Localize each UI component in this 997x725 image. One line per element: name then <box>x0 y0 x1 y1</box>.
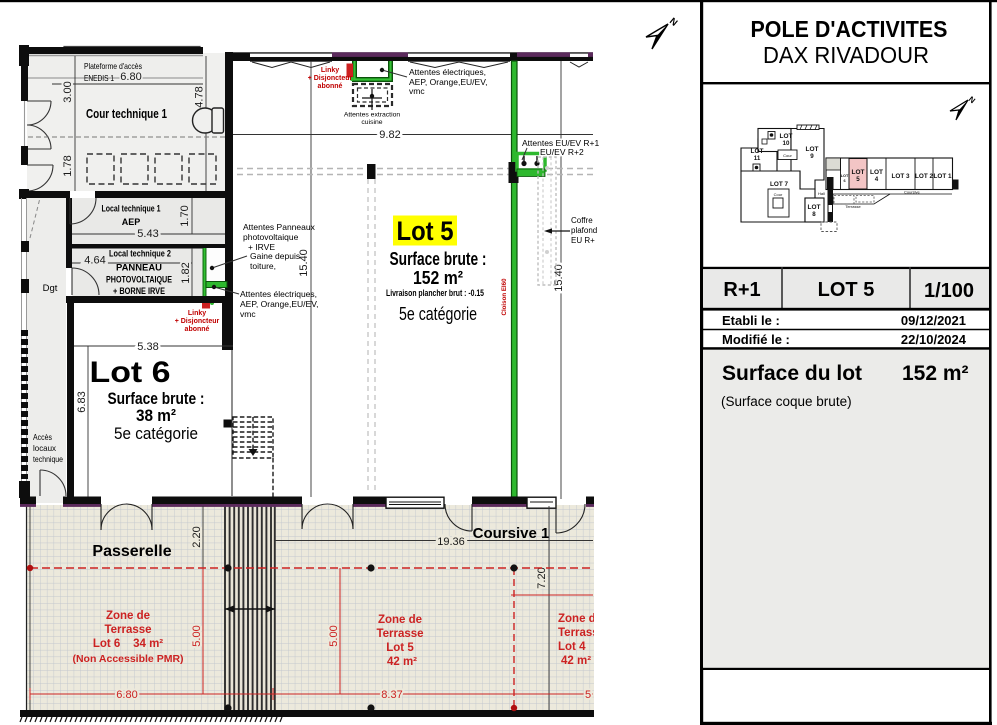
svg-text:Terrasse: Terrasse <box>104 624 151 636</box>
svg-text:09/12/2021: 09/12/2021 <box>901 313 966 328</box>
svg-text:19.36: 19.36 <box>437 536 465 548</box>
svg-text:5.43: 5.43 <box>137 228 158 240</box>
svg-text:152 m²: 152 m² <box>902 362 969 385</box>
svg-text:LOT 1: LOT 1 <box>934 173 953 180</box>
svg-text:Attentes électriques,: Attentes électriques, <box>240 289 317 299</box>
svg-text:3.00: 3.00 <box>62 81 74 102</box>
svg-text:Dgt: Dgt <box>43 283 58 294</box>
svg-text:Hall: Hall <box>818 191 825 196</box>
svg-text:POLE D'ACTIVITES: POLE D'ACTIVITES <box>751 16 948 42</box>
svg-text:vmc: vmc <box>409 86 425 96</box>
svg-text:5e catégorie: 5e catégorie <box>114 425 198 443</box>
svg-text:Surface brute :: Surface brute : <box>390 248 487 269</box>
svg-text:EU/EV R+2: EU/EV R+2 <box>540 147 584 157</box>
svg-text:Accès: Accès <box>33 433 52 442</box>
svg-text:8: 8 <box>812 211 816 218</box>
svg-text:(Surface coque brute): (Surface coque brute) <box>721 394 852 409</box>
svg-text:DAX RIVADOUR: DAX RIVADOUR <box>763 42 929 68</box>
svg-text:1.70: 1.70 <box>179 205 191 226</box>
svg-text:Cour technique 1: Cour technique 1 <box>86 107 167 121</box>
svg-text:38 m²: 38 m² <box>136 407 176 425</box>
svg-text:LOT: LOT <box>780 133 793 140</box>
svg-text:22/10/2024: 22/10/2024 <box>901 332 967 347</box>
svg-text:5: 5 <box>856 176 860 183</box>
svg-text:Coursive: Coursive <box>904 190 921 195</box>
svg-text:Modifié le :: Modifié le : <box>722 332 790 347</box>
svg-text:Lot 6 34 m²: Lot 6 34 m² <box>93 638 163 650</box>
svg-text:PANNEAU: PANNEAU <box>116 263 162 273</box>
svg-text:Local technique 2: Local technique 2 <box>109 249 171 260</box>
svg-text:N: N <box>667 16 679 29</box>
svg-text:10: 10 <box>783 140 790 147</box>
svg-text:6: 6 <box>843 179 845 183</box>
svg-text:2.20: 2.20 <box>191 526 203 547</box>
svg-text:LOT 3: LOT 3 <box>892 173 911 180</box>
svg-text:Zone de: Zone de <box>378 614 422 626</box>
svg-text:Terrasse: Terrasse <box>376 628 423 640</box>
svg-text:9.82: 9.82 <box>379 129 400 141</box>
svg-text:+ BORNE IRVE: + BORNE IRVE <box>113 286 165 296</box>
svg-text:Plateforme d'accès: Plateforme d'accès <box>84 61 142 71</box>
svg-text:4: 4 <box>875 176 879 183</box>
svg-text:5.00: 5.00 <box>328 625 340 646</box>
svg-text:locaux: locaux <box>33 444 56 453</box>
svg-text:N: N <box>967 95 977 106</box>
svg-text:Cloison EI60: Cloison EI60 <box>501 278 508 315</box>
svg-text:LOT 5: LOT 5 <box>818 279 875 301</box>
svg-text:EU R+: EU R+ <box>571 236 595 245</box>
svg-text:5e catégorie: 5e catégorie <box>399 303 477 324</box>
svg-text:4.64: 4.64 <box>84 255 105 267</box>
svg-text:42 m²: 42 m² <box>561 655 591 667</box>
svg-text:Zone de: Zone de <box>106 610 150 622</box>
svg-text:1.82: 1.82 <box>180 262 192 283</box>
svg-text:Attentes extraction: Attentes extraction <box>344 112 401 119</box>
svg-text:6.80: 6.80 <box>120 71 141 83</box>
svg-text:5: 5 <box>585 689 591 701</box>
svg-text:Passerelle: Passerelle <box>92 543 171 560</box>
svg-text:6.83: 6.83 <box>76 391 88 412</box>
svg-text:8.37: 8.37 <box>381 689 402 701</box>
svg-text:Local technique 1: Local technique 1 <box>102 204 162 215</box>
svg-text:LOT: LOT <box>808 204 821 211</box>
svg-text:11: 11 <box>754 155 761 162</box>
svg-text:LOT: LOT <box>852 169 865 176</box>
svg-text:Lot 5: Lot 5 <box>397 216 454 246</box>
svg-text:9: 9 <box>810 153 814 160</box>
svg-text:AEP, Orange,EU/EV,: AEP, Orange,EU/EV, <box>240 299 318 309</box>
svg-text:Linky: Linky <box>321 67 339 74</box>
svg-text:+ Disjoncteur: + Disjoncteur <box>308 75 353 82</box>
svg-text:abonné: abonné <box>318 83 343 90</box>
svg-text:Livraison plancher brut : -0.1: Livraison plancher brut : -0.15 <box>386 288 485 299</box>
svg-text:LOT 7: LOT 7 <box>770 181 789 188</box>
svg-text:42 m²: 42 m² <box>387 656 417 668</box>
svg-text:vmc: vmc <box>240 309 256 319</box>
svg-text:Etabli le :: Etabli le : <box>722 313 780 328</box>
svg-text:abonné: abonné <box>185 326 210 333</box>
svg-text:5.38: 5.38 <box>137 341 158 353</box>
svg-text:AEP: AEP <box>122 217 141 227</box>
svg-text:Terrasse: Terrasse <box>845 204 861 209</box>
svg-text:Gaine depuis: Gaine depuis <box>250 251 300 261</box>
svg-text:Cour: Cour <box>783 153 792 158</box>
svg-text:(Non Accessible PMR): (Non Accessible PMR) <box>72 653 183 665</box>
svg-text:toiture,: toiture, <box>250 261 276 271</box>
svg-text:6.80: 6.80 <box>116 689 137 701</box>
svg-text:Lot 4: Lot 4 <box>558 641 586 653</box>
svg-text:Attentes Panneaux: Attentes Panneaux <box>243 222 316 232</box>
svg-text:photovoltaique: photovoltaique <box>243 232 299 242</box>
svg-text:LOT: LOT <box>870 169 883 176</box>
svg-text:1/100: 1/100 <box>924 280 974 302</box>
svg-text:Attentes électriques,: Attentes électriques, <box>409 67 486 77</box>
svg-text:LOT: LOT <box>841 174 849 178</box>
svg-text:LOT: LOT <box>751 148 764 155</box>
svg-text:Coursive 1: Coursive 1 <box>473 525 550 542</box>
svg-text:Coffre: Coffre <box>571 216 593 225</box>
svg-text:Surface brute :: Surface brute : <box>108 390 205 408</box>
svg-text:technique: technique <box>33 455 63 464</box>
svg-text:Cour: Cour <box>774 192 783 197</box>
svg-text:4.78: 4.78 <box>194 86 206 107</box>
svg-text:PHOTOVOLTAIQUE: PHOTOVOLTAIQUE <box>106 275 172 285</box>
svg-text:15.40: 15.40 <box>553 264 565 292</box>
svg-text:Surface du lot: Surface du lot <box>722 362 862 385</box>
svg-text:R+1: R+1 <box>723 279 760 301</box>
svg-text:Lot 5: Lot 5 <box>386 642 414 654</box>
svg-text:LOT 2: LOT 2 <box>915 173 934 180</box>
svg-text:Lot 6: Lot 6 <box>90 356 171 389</box>
svg-text:cuisine: cuisine <box>361 119 382 126</box>
svg-text:LOT: LOT <box>806 146 819 153</box>
svg-text:5.00: 5.00 <box>191 625 203 646</box>
svg-text:+ Disjoncteur: + Disjoncteur <box>175 318 220 325</box>
svg-text:plafond: plafond <box>571 226 597 235</box>
svg-text:Linky: Linky <box>188 310 206 317</box>
svg-text:7.20: 7.20 <box>536 567 548 588</box>
svg-text:1.78: 1.78 <box>62 155 74 176</box>
svg-text:152 m²: 152 m² <box>413 267 463 288</box>
svg-text:ENEDIS 1: ENEDIS 1 <box>84 73 114 83</box>
